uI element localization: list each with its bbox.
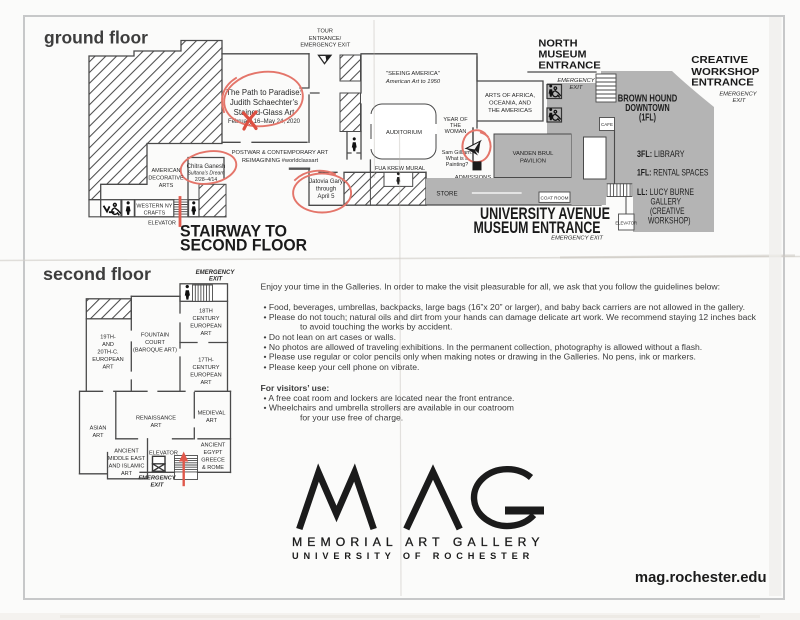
svg-text:VANDEN BRUL: VANDEN BRUL (513, 151, 555, 157)
svg-text:• No photos are allowed of tra: • No photos are allowed of traveling exh… (264, 342, 703, 352)
svg-text:• A free coat room and lockers: • A free coat room and lockers are locat… (264, 393, 515, 403)
svg-text:ART: ART (121, 471, 133, 477)
svg-text:April 5: April 5 (317, 194, 335, 200)
svg-text:COAT ROOM: COAT ROOM (541, 195, 569, 200)
svg-text:& ROME: & ROME (202, 465, 224, 471)
svg-text:• Food, beverages, umbrellas,: • Food, beverages, umbrellas, backpacks,… (264, 302, 745, 312)
svg-text:17TH-: 17TH- (198, 358, 214, 364)
svg-text:ENTRANCE/: ENTRANCE/ (309, 36, 342, 42)
svg-text:RENAISSANCE: RENAISSANCE (136, 416, 176, 422)
svg-text:EGYPT: EGYPT (204, 450, 224, 456)
svg-text:AND: AND (102, 342, 114, 348)
svg-text:WESTERN NY: WESTERN NY (136, 204, 172, 210)
svg-text:EUROPEAN: EUROPEAN (190, 324, 221, 330)
svg-text:ground floor: ground floor (44, 28, 148, 48)
svg-text:• Please keep your cell phone: • Please keep your cell phone on vibrate… (264, 362, 420, 372)
svg-text:ART: ART (102, 365, 114, 371)
svg-text:ENTRANCE: ENTRANCE (691, 78, 754, 89)
svg-text:CAFE: CAFE (601, 122, 613, 127)
svg-text:ELEVATOR: ELEVATOR (148, 221, 176, 227)
svg-text:MEMORIAL ART GALLERY: MEMORIAL ART GALLERY (292, 535, 545, 549)
svg-text:ART: ART (150, 423, 162, 429)
svg-text:ART: ART (206, 418, 218, 424)
svg-text:3FL: LIBRARY: 3FL: LIBRARY (637, 148, 685, 159)
svg-text:EMERGENCY EXIT: EMERGENCY EXIT (300, 43, 351, 49)
svg-text:CENTURY: CENTURY (193, 316, 220, 322)
svg-text:20TH-C.: 20TH-C. (97, 350, 119, 356)
svg-text:For visitors’ use:: For visitors’ use: (261, 383, 330, 393)
svg-text:MIDDLE EAST: MIDDLE EAST (108, 456, 146, 462)
svg-text:DECORATIVE: DECORATIVE (148, 176, 184, 182)
svg-text:FOUNTAIN: FOUNTAIN (141, 333, 169, 339)
svg-text:• Do not lean on art cases or: • Do not lean on art cases or walls. (264, 332, 396, 342)
svg-text:WOMAN: WOMAN (445, 129, 467, 135)
svg-text:through: through (316, 187, 336, 193)
svg-text:EXIT: EXIT (570, 85, 583, 91)
svg-text:ELEVATOR: ELEVATOR (615, 221, 637, 226)
svg-text:EMERGENCY: EMERGENCY (557, 78, 595, 84)
svg-text:EUROPEAN: EUROPEAN (92, 357, 123, 363)
svg-text:(BAROQUE ART): (BAROQUE ART) (133, 348, 177, 354)
svg-text:ART: ART (200, 331, 212, 337)
svg-text:EMERGENCY EXIT: EMERGENCY EXIT (551, 236, 603, 242)
svg-text:19TH-: 19TH- (100, 335, 116, 341)
svg-text:18TH: 18TH (199, 309, 213, 315)
svg-text:EXIT: EXIT (733, 98, 746, 104)
svg-text:CRAFTS: CRAFTS (144, 211, 166, 217)
svg-text:CREATIVE: CREATIVE (691, 55, 748, 66)
svg-text:TOUR: TOUR (317, 29, 333, 35)
svg-text:WORKSHOP): WORKSHOP) (648, 215, 691, 226)
svg-text:MUSEUM: MUSEUM (538, 48, 586, 60)
svg-text:WORKSHOP: WORKSHOP (691, 67, 760, 78)
svg-text:• Wheelchairs and umbrella str: • Wheelchairs and umbrella strollers are… (264, 403, 514, 413)
svg-text:EXIT: EXIT (209, 276, 224, 282)
svg-text:(1FL): (1FL) (639, 112, 656, 124)
svg-text:AUDITORIUM: AUDITORIUM (386, 130, 422, 136)
svg-text:for your use free of charge.: for your use free of charge. (300, 412, 403, 422)
svg-text:EUROPEAN: EUROPEAN (190, 373, 221, 379)
svg-text:mag.rochester.edu: mag.rochester.edu (635, 570, 767, 586)
svg-text:EMERGENCY: EMERGENCY (196, 270, 236, 276)
svg-text:Painting?: Painting? (446, 162, 468, 168)
svg-text:ARTS OF AFRICA,: ARTS OF AFRICA, (485, 93, 535, 99)
svg-text:OCEANIA, AND: OCEANIA, AND (489, 101, 531, 107)
svg-text:to avoid touching the works by: to avoid touching the works by accident. (300, 322, 452, 332)
svg-text:Chitra Ganesh: Chitra Ganesh (187, 164, 226, 170)
svg-text:Enjoy your time in the Galleri: Enjoy your time in the Galleries. In ord… (261, 282, 721, 292)
svg-text:American Art to 1950: American Art to 1950 (385, 79, 441, 85)
svg-text:COURT: COURT (145, 340, 165, 346)
svg-text:GREECE: GREECE (201, 458, 225, 464)
svg-text:"SEEING AMERICA": "SEEING AMERICA" (386, 71, 440, 77)
svg-text:• Please do not touch; natural: • Please do not touch; natural oils and … (264, 312, 757, 322)
svg-text:second floor: second floor (43, 264, 151, 284)
svg-text:THE AMERICAS: THE AMERICAS (488, 108, 532, 114)
svg-text:MUSEUM ENTRANCE: MUSEUM ENTRANCE (474, 218, 601, 237)
svg-text:EXIT: EXIT (151, 483, 164, 489)
svg-text:POSTWAR & CONTEMPORARY ART: POSTWAR & CONTEMPORARY ART (232, 150, 329, 156)
svg-text:MEDIEVAL: MEDIEVAL (198, 411, 226, 417)
svg-text:STORE: STORE (436, 191, 457, 198)
svg-text:EMERGENCY: EMERGENCY (138, 476, 176, 482)
svg-text:AMERICAN: AMERICAN (151, 168, 180, 174)
svg-text:ANCIENT: ANCIENT (114, 449, 139, 455)
svg-text:ART: ART (92, 433, 104, 439)
svg-text:Sultana’s Dream: Sultana’s Dream (188, 171, 225, 177)
svg-text:• Please use regular or color: • Please use regular or color pencils on… (264, 352, 696, 362)
svg-text:REIMAGINING #worldclassart: REIMAGINING #worldclassart (242, 158, 319, 164)
svg-text:Judith Schaechter’s: Judith Schaechter’s (230, 98, 298, 107)
svg-text:ART: ART (200, 380, 212, 386)
svg-text:PAVILION: PAVILION (520, 159, 546, 165)
svg-text:CENTURY: CENTURY (193, 365, 220, 371)
svg-text:1FL: RENTAL SPACES: 1FL: RENTAL SPACES (637, 167, 709, 178)
svg-text:AND ISLAMIC: AND ISLAMIC (109, 464, 145, 470)
svg-text:Jatovia Gary: Jatovia Gary (309, 179, 343, 185)
svg-text:The Path to Paradise:: The Path to Paradise: (226, 88, 301, 97)
svg-text:UNIVERSITY OF ROCHESTER: UNIVERSITY OF ROCHESTER (292, 551, 534, 561)
svg-text:ARTS: ARTS (159, 183, 174, 189)
svg-text:SECOND FLOOR: SECOND FLOOR (180, 236, 307, 255)
svg-text:EMERGENCY: EMERGENCY (719, 92, 757, 98)
svg-text:ANCIENT: ANCIENT (201, 443, 226, 449)
svg-text:ASIAN: ASIAN (90, 426, 107, 432)
svg-text:ENTRANCE: ENTRANCE (538, 60, 600, 72)
